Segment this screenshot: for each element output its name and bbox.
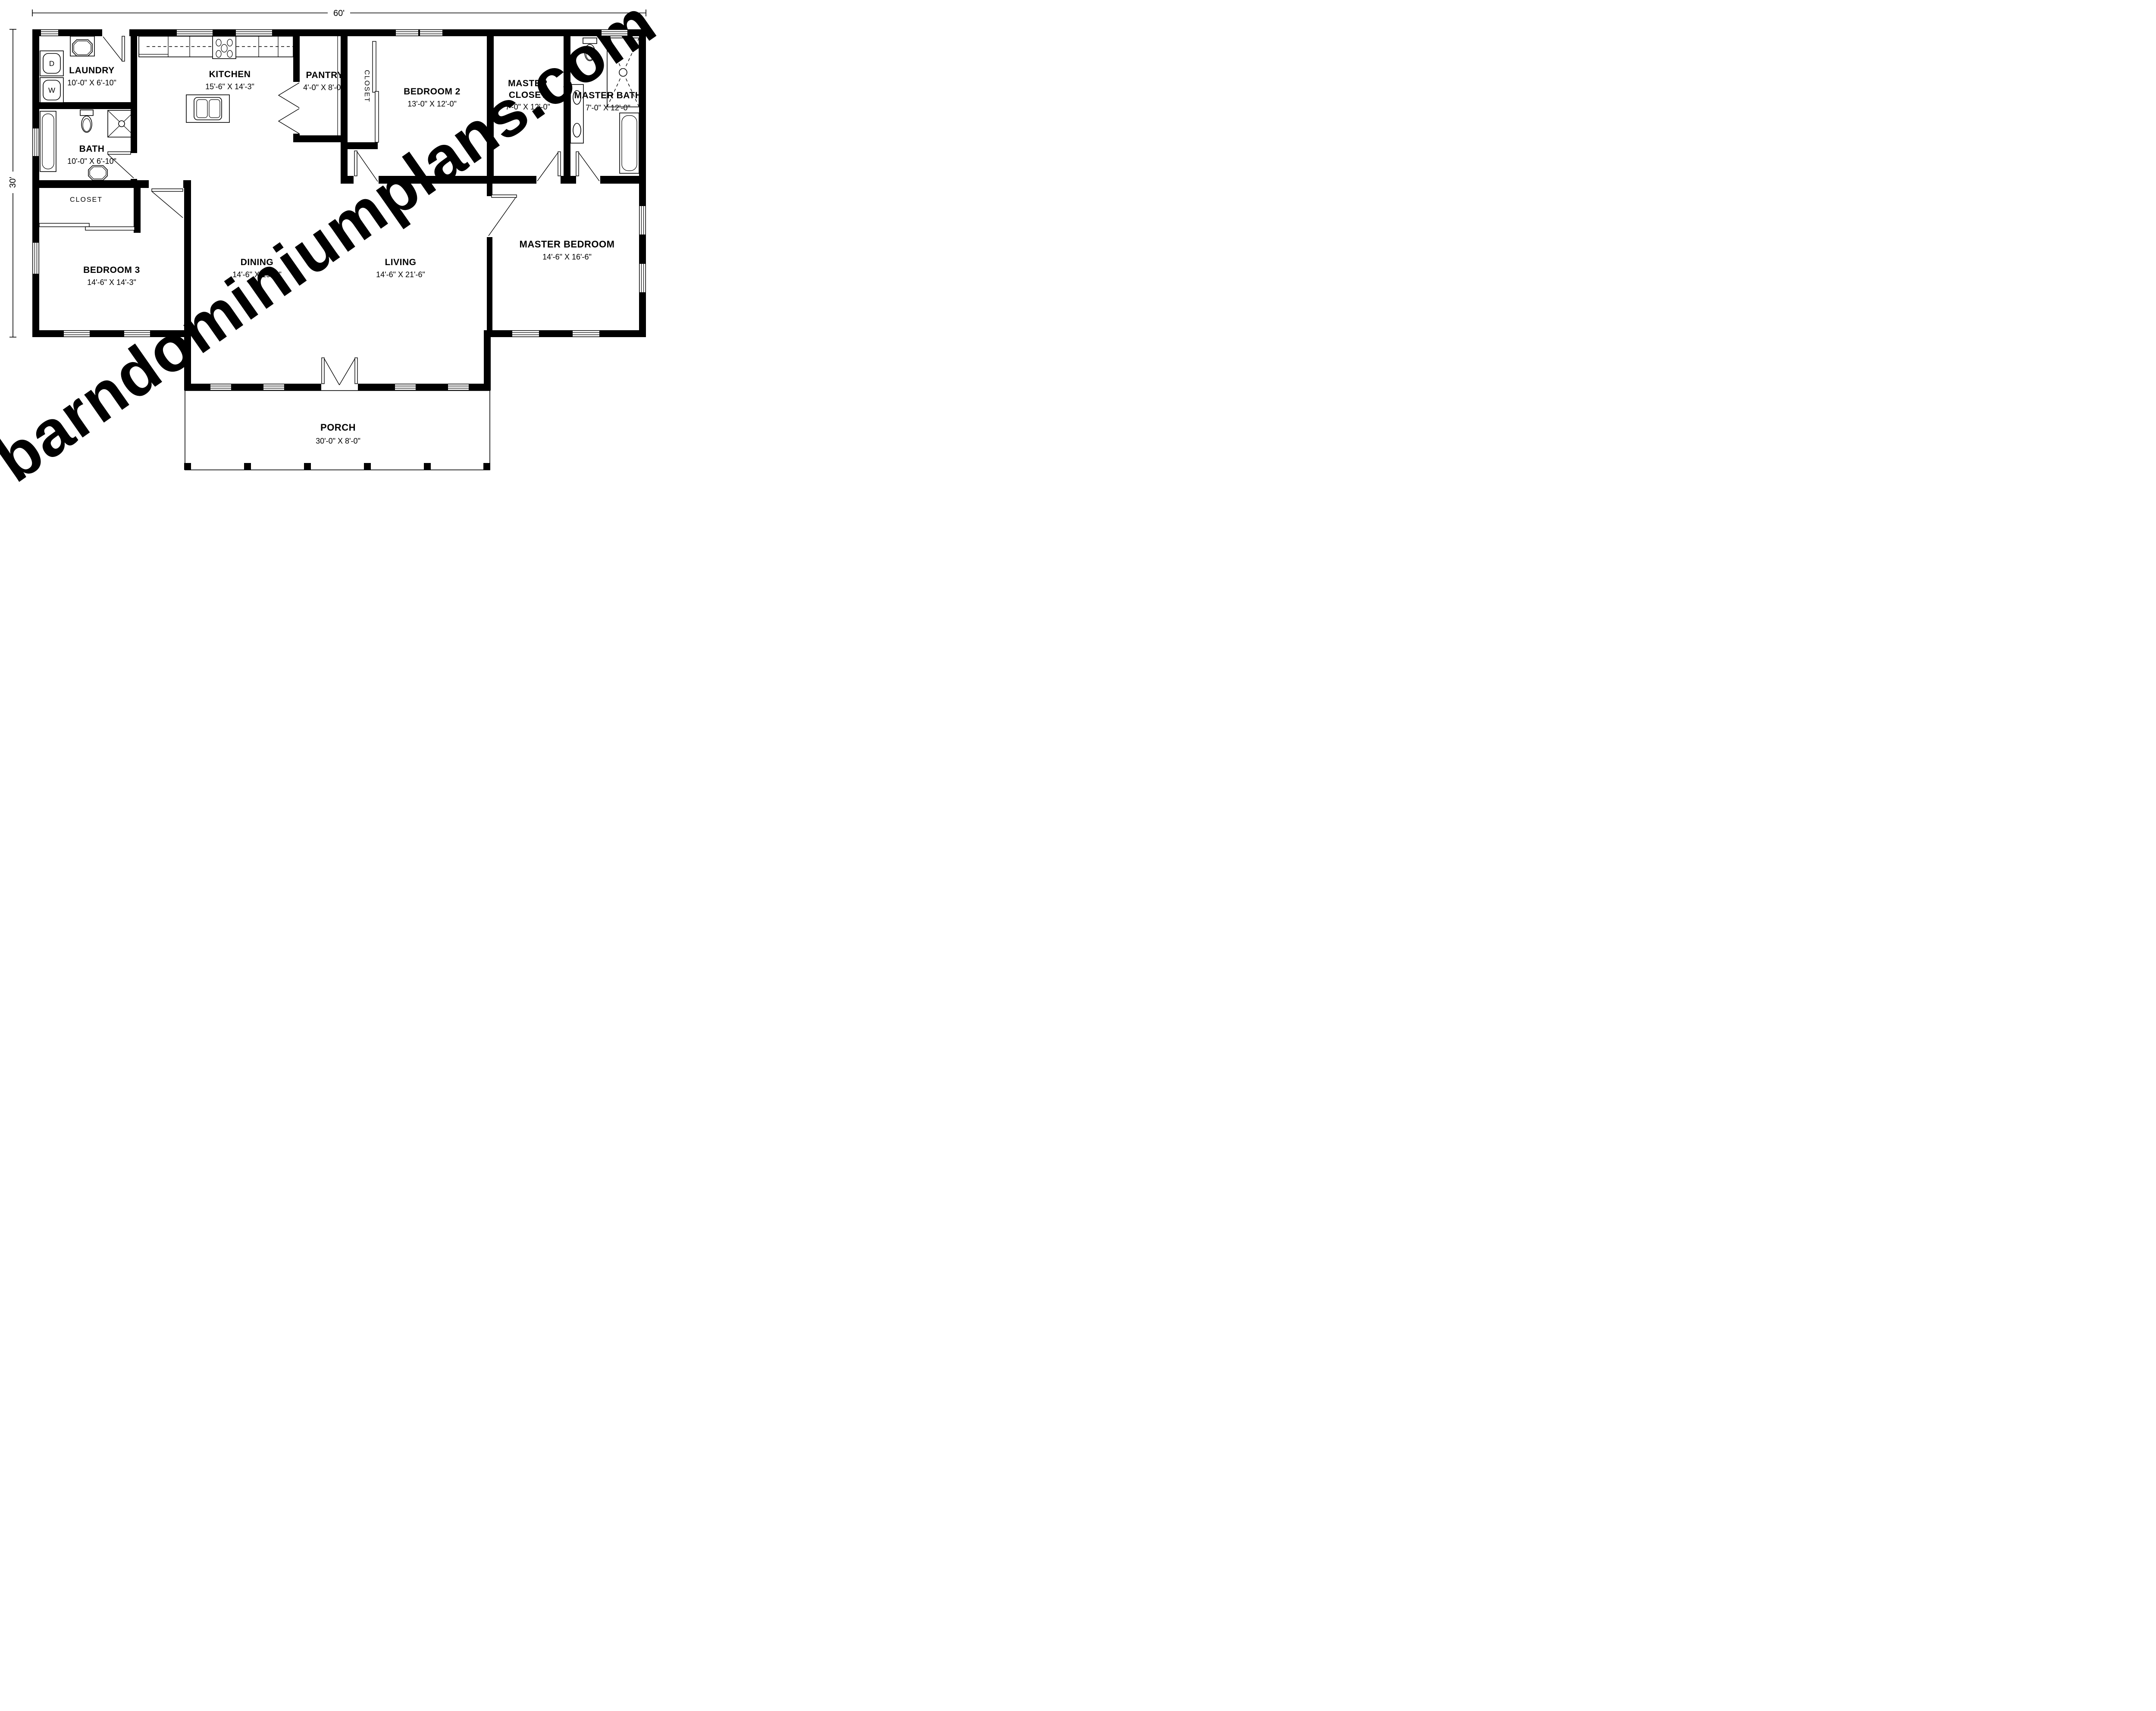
wall-segment — [348, 176, 354, 184]
depth-dimension-label: 30' — [8, 177, 18, 188]
kitchen-dims: 15'-6" X 14'-3" — [205, 82, 254, 91]
wall-segment — [134, 188, 141, 233]
wall-segment — [184, 180, 191, 330]
wall-segment — [184, 337, 191, 391]
window — [263, 385, 284, 390]
master-bath-dims: 7'-0" X 12'-0" — [586, 103, 630, 112]
bedroom2-dims: 13'-0" X 12'-0" — [407, 100, 457, 108]
window — [448, 385, 469, 390]
master-closet-door — [536, 152, 561, 184]
master-bath-door — [576, 152, 600, 184]
hall-closet-sliders — [373, 41, 379, 142]
toilet — [80, 110, 93, 132]
window — [420, 30, 442, 36]
master-bath-name: MASTER BATH — [574, 91, 642, 100]
wall-segment — [341, 142, 348, 184]
porch-dims: 30'-0" X 8'-0" — [316, 437, 360, 445]
dimension-depth: 30' — [8, 29, 18, 337]
porch-double-door — [321, 358, 358, 391]
porch-post — [184, 463, 191, 470]
window — [640, 264, 646, 292]
kitchen-fixtures — [139, 36, 293, 122]
wall-segment — [379, 176, 536, 184]
window — [396, 30, 418, 36]
dimension-width: 60' — [32, 9, 646, 18]
width-dimension-label: 60' — [333, 9, 345, 18]
stove — [213, 36, 236, 59]
porch-post — [244, 463, 251, 470]
master-closet-name-line1: MASTER — [508, 78, 548, 88]
wall-segment — [600, 176, 646, 184]
kitchen-name: KITCHEN — [209, 69, 251, 79]
pantry-name: PANTRY — [306, 70, 344, 80]
floor-plan-page: barndominiumplans.com — [0, 0, 676, 503]
wall-segment — [348, 142, 378, 149]
wall-segment — [32, 180, 149, 188]
bathtub — [40, 111, 56, 172]
dining-dims: 14'-6" X 19'-9" — [232, 270, 282, 279]
floor-plan-drawing: barndominiumplans.com — [0, 0, 676, 503]
wall-segment — [487, 237, 492, 330]
window — [124, 331, 150, 337]
laundry-sink — [70, 36, 94, 56]
hall-closet-name: CLOSET — [363, 70, 370, 103]
master-tub — [620, 113, 639, 173]
window — [236, 30, 272, 36]
wall-segment — [484, 330, 646, 337]
wall-segment — [487, 184, 492, 196]
master-closet-name-line2: CLOSET — [509, 90, 547, 100]
washer-label: W — [48, 86, 55, 94]
bath-sink — [88, 166, 107, 180]
bedroom3-door — [149, 180, 183, 218]
washer: W — [40, 78, 63, 103]
porch-name: PORCH — [320, 422, 356, 433]
bedroom3-name: BEDROOM 3 — [83, 265, 140, 275]
wall-segment — [32, 102, 137, 109]
window — [33, 128, 39, 156]
living-name: LIVING — [385, 257, 416, 267]
wall-segment — [484, 337, 491, 391]
porch-post — [424, 463, 431, 470]
window — [33, 243, 39, 274]
porch-post — [304, 463, 311, 470]
pantry-dims: 4'-0" X 8'-0" — [303, 83, 344, 92]
dryer: D — [40, 51, 63, 76]
wall-segment — [564, 36, 570, 176]
window — [64, 331, 90, 337]
laundry-exterior-door — [102, 29, 129, 61]
master-bedroom-name: MASTER BEDROOM — [520, 239, 615, 250]
window — [41, 30, 58, 36]
wall-segment — [561, 176, 576, 184]
porch-post — [364, 463, 371, 470]
master-bedroom-door — [487, 195, 517, 237]
wall-segment — [32, 330, 191, 337]
dining-name: DINING — [241, 257, 274, 267]
bath-dims: 10'-0" X 6'-10" — [67, 157, 116, 166]
window — [177, 30, 213, 36]
wall-segment — [293, 135, 348, 142]
window — [512, 331, 539, 337]
kitchen-island — [186, 95, 229, 122]
master-closet-dims: 7'-0" X 12'-0" — [505, 103, 550, 111]
bath-name: BATH — [79, 144, 105, 154]
window — [602, 30, 627, 36]
wall-segment — [32, 222, 39, 233]
bedroom2-name: BEDROOM 2 — [404, 87, 461, 97]
laundry-dims: 10'-0" X 6'-10" — [67, 78, 116, 87]
window — [640, 206, 646, 235]
bedroom3-dims: 14'-6" X 14'-3" — [87, 278, 136, 287]
window — [395, 385, 416, 390]
bedroom3-closet-name: CLOSET — [70, 196, 103, 203]
window — [210, 385, 231, 390]
window — [573, 331, 599, 337]
dryer-label: D — [49, 59, 54, 68]
laundry-name: LAUNDRY — [69, 66, 114, 75]
wall-segment — [487, 36, 494, 176]
master-bedroom-dims: 14'-6" X 16'-6" — [542, 253, 592, 261]
porch-post — [483, 463, 490, 470]
pantry-double-doors — [279, 82, 300, 134]
bedroom3-closet-sliders — [39, 223, 135, 230]
living-dims: 14'-6" X 21'-6" — [376, 270, 425, 279]
wall-segment — [293, 36, 300, 82]
